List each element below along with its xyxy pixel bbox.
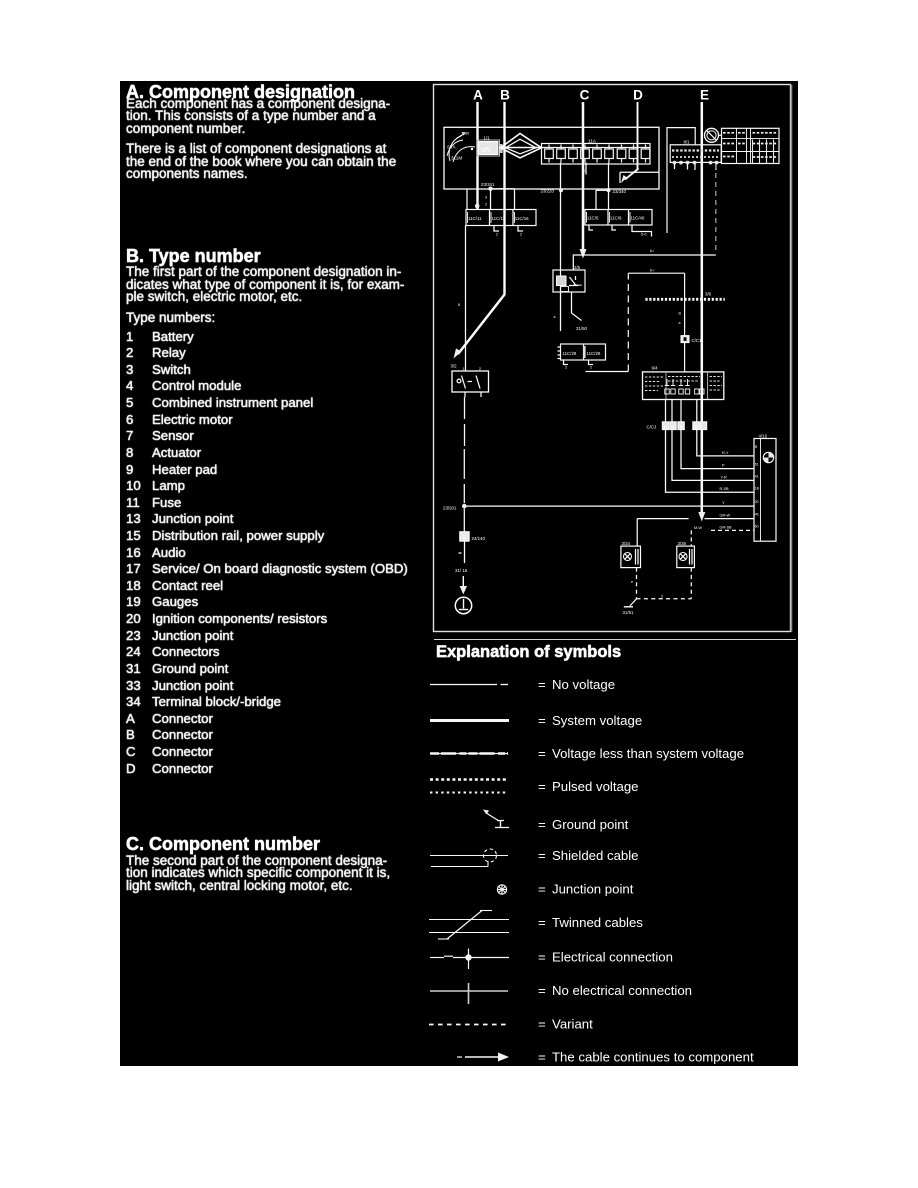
svg-text:System voltage: System voltage [552,713,642,728]
svg-text:=: = [538,848,546,863]
svg-text:R-SB: R-SB [720,487,730,491]
svg-text:23/341: 23/341 [481,182,495,187]
svg-text:11C/28: 11C/28 [563,351,577,356]
svg-text:4: 4 [583,169,585,173]
svg-text:5-0: 5-0 [641,233,647,237]
svg-text:3/6: 3/6 [705,291,712,296]
svg-text:41: 41 [755,474,759,478]
svg-text:B: B [679,312,682,316]
svg-text:2/5: 2/5 [574,265,581,270]
svg-text:No voltage: No voltage [552,677,615,692]
svg-text:2: 2 [520,233,522,237]
svg-text:E: E [700,88,709,103]
svg-text:=: = [538,746,546,761]
svg-text:=: = [538,1050,546,1065]
svg-text:60: 60 [755,525,759,529]
svg-text:8: 8 [458,303,460,307]
svg-text:12V: 12V [481,148,491,154]
svg-text:30: 30 [465,132,469,136]
svg-text:2: 2 [485,203,487,207]
svg-text:A: A [473,88,483,103]
svg-text:Variant: Variant [552,1017,593,1032]
svg-text:=: = [538,713,546,728]
svg-text:3/2: 3/2 [451,364,458,369]
svg-text:D: D [633,88,643,103]
svg-text:11C/16: 11C/16 [515,216,529,221]
svg-text:Junction point: Junction point [552,882,634,897]
svg-text:=: = [538,677,546,692]
svg-text:11C/9: 11C/9 [610,216,622,221]
svg-text:30: 30 [755,500,759,504]
svg-text:6-/: 6-/ [650,269,655,273]
svg-text:45: 45 [755,513,759,517]
svg-text:C/C1: C/C1 [692,338,703,343]
svg-text:23/201: 23/201 [443,506,457,511]
svg-text:1/1: 1/1 [484,136,491,141]
svg-text:9/4: 9/4 [652,365,659,370]
svg-text:Voltage less than system volta: Voltage less than system voltage [552,746,744,761]
svg-text:3: 3 [462,536,465,542]
svg-text:3: 3 [485,196,487,200]
svg-text:P: P [722,464,725,468]
svg-text:=: = [538,1017,546,1032]
svg-text:=: = [538,779,546,794]
svg-text:3/34: 3/34 [622,541,631,546]
svg-text:1B: 1B [755,486,760,490]
svg-text:11C/29: 11C/29 [587,351,601,356]
svg-text:No electrical connection: No electrical connection [552,983,692,998]
svg-text:C: C [580,88,590,103]
svg-text:=: = [538,882,546,897]
svg-text:Y-R: Y-R [721,475,727,479]
svg-text:2: 2 [695,424,698,430]
svg-text:4/16: 4/16 [759,433,768,438]
svg-text:11C/11: 11C/11 [468,216,482,221]
svg-text:2: 2 [661,595,663,599]
svg-text:4: 4 [672,424,675,430]
svg-text:11C/12: 11C/12 [492,216,506,221]
svg-text:=: = [538,950,546,965]
svg-text:3/35: 3/35 [678,541,687,546]
svg-text:=: = [538,915,546,930]
svg-text:24/140: 24/140 [472,536,486,541]
svg-text:11A: 11A [588,139,597,144]
svg-text:31/ 15: 31/ 15 [455,568,468,573]
svg-text:31/50: 31/50 [576,326,588,331]
svg-text:=: = [538,817,546,832]
svg-text:GR-W: GR-W [720,514,731,518]
svg-text:6-/: 6-/ [650,249,654,253]
svg-text:23/220: 23/220 [541,188,555,193]
svg-text:B: B [500,88,510,103]
svg-text:2: 2 [565,366,567,370]
svg-text:Pulsed voltage: Pulsed voltage [552,779,639,794]
svg-text:STA: STA [447,145,457,150]
svg-text:11C/40: 11C/40 [631,216,645,221]
svg-text:61: 61 [755,463,759,467]
svg-text:e: e [631,580,633,584]
svg-text:2: 2 [496,233,498,237]
svg-text:Shielded cable: Shielded cable [552,848,639,863]
svg-text:23/340: 23/340 [613,189,627,194]
svg-text:Y: Y [722,501,725,505]
svg-text:R-Y: R-Y [722,451,729,455]
svg-text:M-W: M-W [694,526,702,530]
svg-text:a: a [679,321,681,325]
svg-text:1: 1 [463,367,465,371]
svg-text:C/CJ: C/CJ [647,424,657,429]
svg-text:311M: 311M [451,156,462,161]
svg-text:6: 6 [664,424,667,430]
svg-text:a: a [554,315,556,319]
svg-text:Twinned cables: Twinned cables [552,915,643,930]
svg-text:GR-SB: GR-SB [720,525,732,529]
svg-text:Ground point: Ground point [552,817,629,832]
svg-text:8/1: 8/1 [684,139,691,144]
svg-text:2: 2 [680,424,683,430]
svg-text:=: = [538,983,546,998]
svg-text:2: 2 [590,366,592,370]
svg-text:11C/5: 11C/5 [587,216,599,221]
svg-text:Electrical connection: Electrical connection [552,950,673,965]
svg-text:2: 2 [479,367,481,371]
svg-text:B: B [755,445,758,449]
svg-text:31/51: 31/51 [623,610,635,615]
svg-text:The cable continues to compone: The cable continues to component [552,1050,754,1065]
